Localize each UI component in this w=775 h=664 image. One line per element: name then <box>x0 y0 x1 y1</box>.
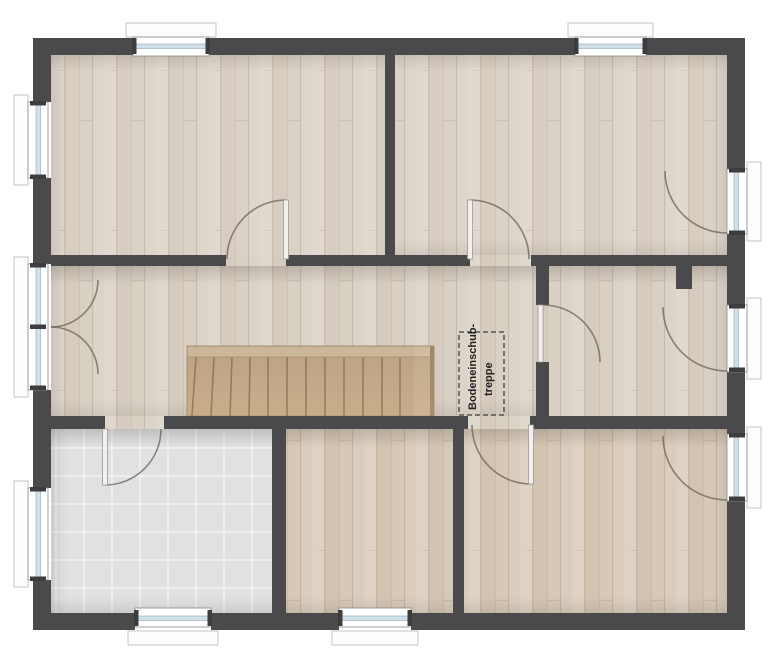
svg-text:Bodeneinschub-: Bodeneinschub- <box>467 323 479 410</box>
svg-text:treppe: treppe <box>483 362 495 396</box>
